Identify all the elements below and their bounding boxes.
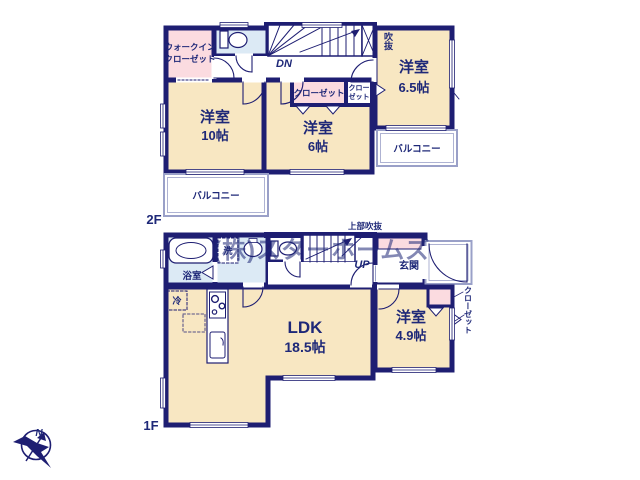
ldk-size: 18.5帖 — [284, 339, 325, 355]
kitchen-counter-icon — [207, 289, 228, 363]
room65-name: 洋室 — [399, 58, 429, 76]
closet-small-line1: クロー — [349, 83, 370, 92]
ldk-name: LDK — [288, 318, 324, 337]
watermark: (株)スターホームズ — [213, 236, 430, 264]
upper-void-label: 上部吹抜 — [348, 221, 383, 231]
fridge-label: 冷 — [172, 295, 181, 306]
room-2f-stairs — [268, 25, 362, 56]
room65-size: 6.5帖 — [398, 80, 429, 95]
void-2f-label: 吹抜 — [383, 31, 394, 51]
toilet-icon-2f — [220, 31, 247, 48]
room49-size: 4.9帖 — [395, 328, 426, 343]
room49-name: 洋室 — [396, 308, 426, 326]
room-2f-closet-small — [346, 80, 372, 105]
bath-label: 浴室 — [182, 270, 202, 282]
balcony-left-label: バルコニー — [192, 190, 239, 202]
room6-size: 6帖 — [308, 139, 328, 154]
wic-label-line1: ウォークイン — [164, 42, 216, 52]
room10-size: 10帖 — [201, 128, 228, 143]
closet-1f-label: クローゼット — [464, 286, 473, 334]
floor-plan-page: ウォークイン クローゼット DN 吹抜 洋室 10帖 洋室 6帖 洋室 6.5帖… — [0, 0, 640, 480]
room10-name: 洋室 — [200, 108, 230, 126]
room6-name: 洋室 — [303, 119, 333, 137]
closet-small-line2: ゼット — [349, 92, 370, 101]
compass-north-label: N — [35, 428, 43, 439]
floor-2f: ウォークイン クローゼット DN 吹抜 洋室 10帖 洋室 6帖 洋室 6.5帖… — [146, 22, 459, 227]
wic-label-line2: クローゼット — [164, 54, 215, 64]
floor-plan-drawing: ウォークイン クローゼット DN 吹抜 洋室 10帖 洋室 6帖 洋室 6.5帖… — [0, 0, 640, 480]
room-2f-bedroom10 — [166, 80, 264, 172]
room-1f-closet49 — [428, 288, 452, 306]
closet-main-label: クローゼット — [293, 88, 344, 98]
bathtub-icon — [169, 238, 213, 263]
stairs-2f-label: DN — [276, 58, 293, 70]
floor-1f-label: 1F — [143, 418, 158, 433]
compass: N — [13, 428, 51, 468]
room-2f-hall — [214, 56, 374, 80]
room-1f-ldk — [166, 287, 373, 425]
floor-2f-label: 2F — [146, 212, 161, 227]
balcony-right-label: バルコニー — [393, 143, 440, 155]
